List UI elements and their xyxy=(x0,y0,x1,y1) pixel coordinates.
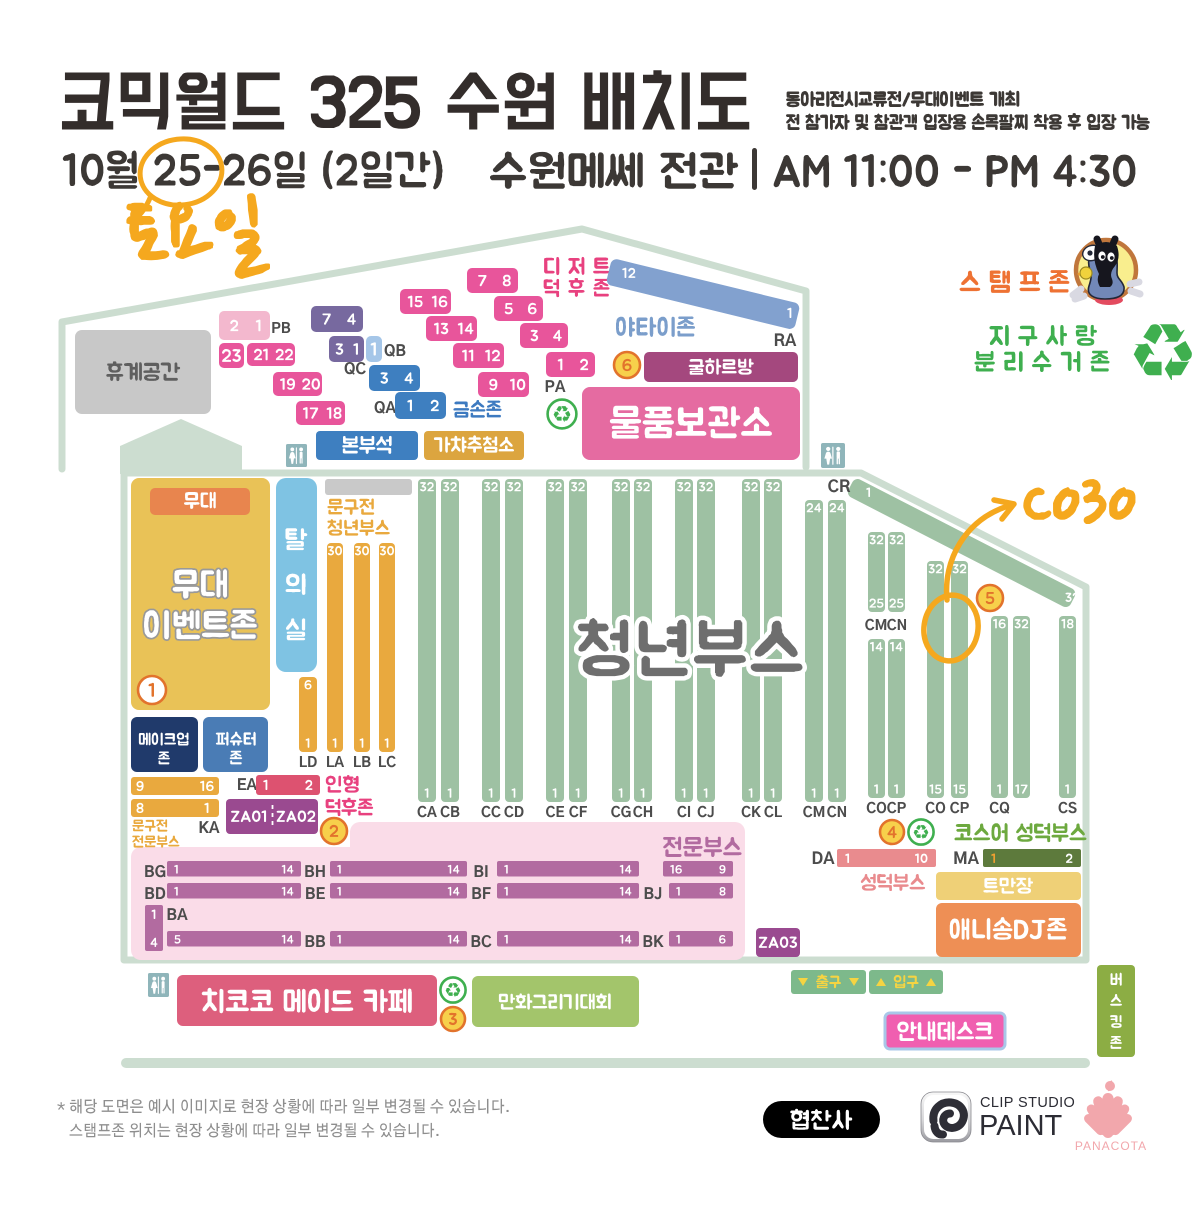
svg-text:CLIP STUDIO: CLIP STUDIO xyxy=(980,1095,1075,1111)
svg-text:PANACOTA: PANACOTA xyxy=(1075,1139,1147,1153)
svg-text:PAINT: PAINT xyxy=(979,1110,1063,1142)
